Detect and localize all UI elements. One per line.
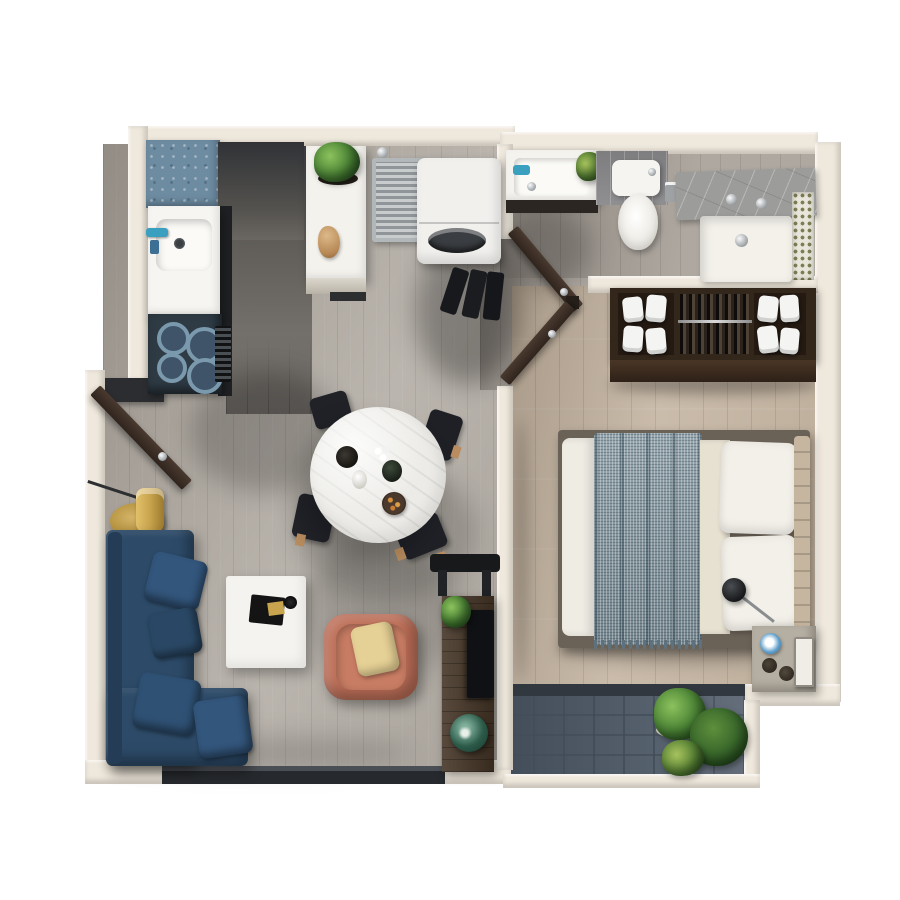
sliding-window bbox=[162, 766, 452, 784]
divider-shadow bbox=[513, 420, 529, 680]
burner-icon bbox=[157, 353, 187, 383]
desk-chair-arm bbox=[482, 570, 491, 596]
duvet-fringe bbox=[594, 640, 702, 649]
divider-wall bbox=[497, 386, 513, 770]
towel-roll bbox=[779, 294, 800, 322]
dining-table bbox=[310, 407, 446, 543]
burner-icon bbox=[157, 322, 190, 355]
decor-figurine bbox=[318, 226, 340, 258]
laundry-tap bbox=[377, 147, 388, 158]
towel-roll bbox=[645, 294, 667, 323]
nightstand-book bbox=[794, 637, 814, 687]
vanity-faucet bbox=[513, 165, 530, 175]
toilet-bowl bbox=[618, 194, 658, 250]
nightstand-cup bbox=[760, 633, 781, 654]
vanity-drain bbox=[527, 182, 536, 191]
bed-duvet bbox=[594, 433, 702, 645]
bathroom-door-handle bbox=[560, 288, 568, 296]
shower-fixture bbox=[726, 194, 737, 205]
bed-headboard bbox=[794, 436, 810, 640]
washer-lid-seam bbox=[419, 222, 499, 224]
blue-kitchen-counter bbox=[146, 140, 220, 208]
shower-fixture bbox=[756, 198, 767, 209]
bed-mattress-edge bbox=[562, 438, 594, 636]
table-bowl bbox=[336, 446, 358, 468]
sofa-pillow bbox=[146, 606, 203, 660]
console-base-dark bbox=[330, 292, 366, 301]
toilet-tank bbox=[612, 160, 660, 196]
sofa-backrest bbox=[108, 532, 122, 764]
sofa-pillow bbox=[192, 695, 254, 760]
towel-roll bbox=[779, 327, 800, 355]
desk-chair-arm bbox=[438, 570, 447, 596]
vase-highlight bbox=[458, 726, 472, 740]
toilet-flush-button bbox=[648, 168, 656, 176]
floorplan-image bbox=[0, 0, 900, 900]
table-food-plate bbox=[382, 492, 406, 515]
coffee-table-gold-box bbox=[267, 601, 285, 616]
laptop bbox=[467, 610, 494, 698]
sink-drain bbox=[174, 238, 185, 249]
towel-roll bbox=[756, 325, 779, 354]
bedroom-door-handle bbox=[548, 330, 556, 338]
coffee-table-dish bbox=[284, 596, 297, 609]
vanity-under-edge bbox=[506, 200, 598, 213]
balcony-bottom-wall bbox=[503, 774, 760, 788]
nightstand-candle bbox=[762, 658, 777, 673]
nightstand-candle bbox=[779, 666, 794, 681]
shower-drain bbox=[735, 234, 748, 247]
floor-lamp bbox=[136, 488, 164, 532]
wardrobe-front-face bbox=[610, 360, 816, 382]
table-vase bbox=[352, 470, 367, 489]
table-plant-pot bbox=[382, 460, 402, 482]
wardrobe-hanging-clothes bbox=[680, 294, 750, 354]
left-wall-kitchen bbox=[128, 126, 148, 392]
shower-tray bbox=[700, 216, 792, 282]
washer-drum bbox=[428, 228, 486, 253]
left-wall-living bbox=[85, 370, 105, 780]
wardrobe-rail bbox=[678, 320, 752, 323]
sofa-pillow bbox=[132, 671, 203, 737]
entry-door-handle bbox=[158, 452, 167, 461]
mosaic-tile-strip bbox=[792, 192, 814, 280]
reading-lamp bbox=[722, 578, 746, 602]
kitchen-faucet-handle bbox=[150, 240, 159, 254]
right-wall bbox=[815, 142, 841, 702]
oven-vent-grill bbox=[215, 326, 231, 382]
towel-roll bbox=[622, 325, 644, 352]
towel-roll bbox=[622, 296, 645, 323]
towel-roll bbox=[645, 327, 667, 355]
bed-pillow bbox=[718, 441, 797, 536]
kitchen-faucet bbox=[146, 228, 168, 237]
towel-roll bbox=[757, 295, 780, 323]
